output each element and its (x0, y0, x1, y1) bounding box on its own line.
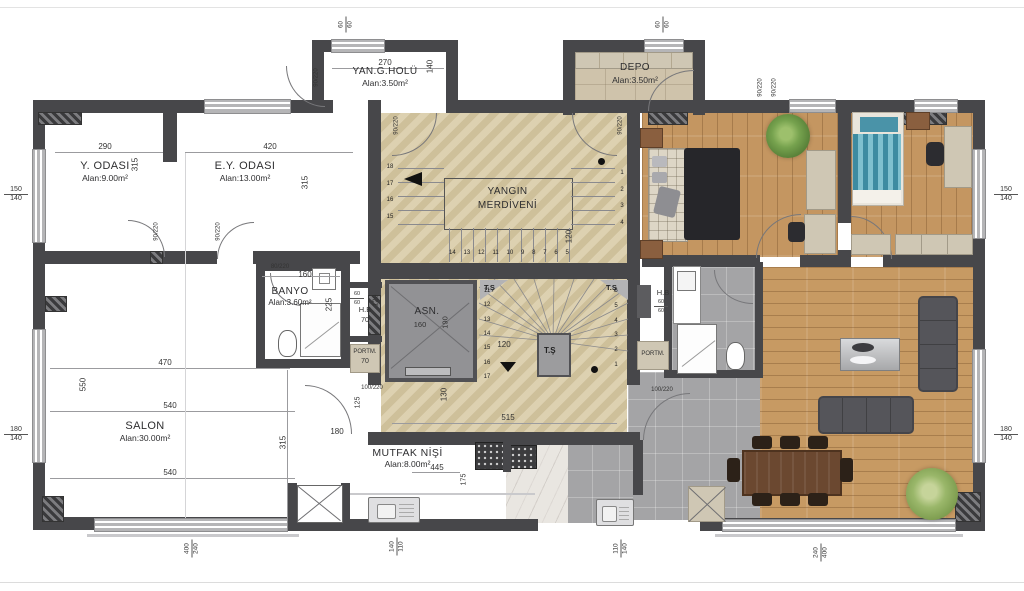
y-odasi-area: Alan:9.00m² (55, 174, 155, 183)
stair-start-dot (598, 158, 605, 165)
window (332, 40, 384, 52)
stair-direction-arrow (404, 172, 422, 186)
landing-width: 515 (488, 413, 528, 422)
edge-left-bottom: 180 140 (4, 426, 28, 443)
main-step-numbers-left: 11121314151617 (481, 288, 493, 380)
nightstand (906, 112, 930, 130)
door-size: 100/220 (642, 387, 682, 394)
edge-value: 140 (4, 435, 28, 443)
dining-chair (808, 493, 828, 506)
sofa-vertical (918, 296, 958, 392)
step-number: 5 (566, 250, 569, 258)
shaft (637, 285, 651, 318)
page-border-top (0, 7, 1024, 8)
door-size: 90/220 (216, 219, 223, 245)
bottom-dim-3: 110 140 (613, 540, 630, 558)
ey-odasi-height: 315 (301, 170, 310, 196)
edge-value: 110 (398, 538, 406, 556)
banyo-sink-basin (319, 273, 330, 284)
window (973, 350, 985, 462)
door-size: 90/220 (314, 65, 321, 91)
wall-segment (563, 40, 705, 52)
step-number: 9 (521, 250, 524, 258)
cabinet (851, 234, 891, 255)
step-number: 1 (616, 170, 628, 176)
edge-right-bottom: 180 140 (994, 426, 1018, 443)
window (205, 100, 290, 113)
wall-hatch (648, 112, 688, 125)
cabinet (895, 234, 973, 255)
wall-segment (350, 282, 382, 288)
dim-line (50, 411, 295, 412)
step-number: 18 (384, 164, 396, 170)
entry-left-dim: 125 (354, 391, 363, 415)
bottom-dim-1: 400 240 (184, 540, 201, 558)
vent-grill (476, 443, 503, 469)
edge-value: 400 (184, 540, 193, 558)
main-step-numbers-right: 654321 (610, 288, 622, 368)
edge-value: 60 (347, 17, 355, 33)
banyo-area: Alan:3.60m² (256, 298, 324, 307)
salon-area: Alan:30.00m² (90, 434, 200, 443)
wardrobe (806, 150, 836, 210)
step-number: 11 (492, 250, 498, 258)
bed1-pillow (652, 156, 667, 167)
wall-segment (368, 100, 381, 385)
edge-value: 180 (4, 426, 28, 435)
window (915, 100, 957, 112)
step-number: 4 (610, 318, 622, 324)
window (790, 100, 835, 112)
step-number: 17 (384, 181, 396, 187)
wall-segment (503, 440, 511, 472)
step-number: 13 (463, 250, 470, 258)
witness-line (185, 153, 186, 518)
dining-chair (780, 436, 800, 449)
ey-odasi-width: 420 (245, 142, 295, 151)
floor-plan: ASN. 160 190 YANGIN MERDİVENİ 18171615 1… (0, 0, 1024, 591)
step-number: 12 (478, 250, 485, 258)
tv-unit (840, 338, 900, 371)
tv-shelf (850, 356, 876, 364)
mutfak-name: MUTFAK NİŞİ (350, 447, 465, 459)
plant (766, 114, 810, 158)
fire-step-numbers-left: 18171615 (384, 164, 396, 220)
dim-line (50, 478, 295, 479)
step-number: 14 (481, 331, 493, 337)
dining-chair (840, 458, 853, 482)
wall-hatch (42, 496, 64, 522)
stair-down-arrow (500, 362, 516, 372)
hb-size-bottom: 60 (654, 307, 668, 315)
window (645, 40, 683, 52)
step-number: 14 (449, 250, 456, 258)
bed2-fold (853, 190, 901, 203)
step-number: 6 (610, 288, 622, 294)
ey-odasi-area: Alan:13.00m² (190, 174, 300, 183)
step-number: 3 (610, 332, 622, 338)
bed2-pillow (858, 115, 900, 134)
wall-hatch (38, 112, 82, 125)
door-size: 90/220 (154, 219, 161, 245)
dim-line (392, 423, 617, 424)
hb-left-width: 70 (354, 316, 376, 325)
edge-value: 60 (655, 17, 664, 33)
tv-screen (852, 343, 874, 352)
fire-stair-title2: MERDİVENİ (444, 200, 571, 212)
toilet (726, 342, 745, 370)
stair-newel-box (537, 333, 571, 377)
dim-line (50, 368, 290, 369)
portm-right-label: PORTM. (637, 350, 669, 359)
wall-hatch (955, 492, 981, 522)
hall-gap-dim: 180 (322, 427, 352, 436)
fire-stair-title1: YANGIN (444, 186, 571, 198)
dim-line (55, 152, 163, 153)
edge-value: 140 (4, 195, 28, 203)
edge-value: 140 (994, 435, 1018, 443)
wall-hatch (45, 296, 67, 312)
wall-segment (455, 100, 640, 113)
edge-value: 110 (613, 540, 622, 558)
depo-name: DEPO (580, 62, 690, 74)
bath-sink (677, 271, 696, 291)
wall-segment (256, 359, 350, 368)
counter-edge (350, 493, 535, 495)
edge-value: 240 (813, 544, 822, 562)
main-stair-width: 120 (492, 340, 516, 349)
bed1-blanket (684, 148, 740, 240)
balcony-window (723, 520, 955, 531)
shower (300, 303, 341, 357)
salon-dim-top: 470 (145, 358, 185, 367)
stair-end-dot (591, 366, 598, 373)
banyo-name: BANYO (262, 286, 318, 298)
ey-odasi-door-arc (217, 222, 254, 259)
step-number: 7 (543, 250, 546, 258)
fire-steps-right (571, 168, 615, 226)
bed2-blanket (853, 134, 901, 190)
page-border-bottom (0, 582, 1024, 583)
edge-value: 240 (193, 540, 201, 558)
mutfak-width: 445 (418, 463, 456, 472)
window-sill (715, 534, 963, 537)
edge-value: 180 (994, 426, 1018, 435)
desk (804, 214, 836, 254)
step-number: 10 (506, 250, 513, 258)
step-number: 17 (481, 374, 493, 380)
dining-chair (752, 436, 772, 449)
y-odasi-name: Y. ODASI (55, 160, 155, 172)
hb-left-depth: 120 (372, 289, 381, 313)
dining-chair (780, 493, 800, 506)
dining-chair (808, 436, 828, 449)
edge-value: 140 (622, 540, 630, 558)
dim-line (412, 472, 460, 473)
hb-size-top: 60 (350, 290, 364, 299)
step-number: 13 (481, 317, 493, 323)
holu-height: 140 (426, 55, 435, 79)
bottom-dim-2: 140 110 (389, 538, 406, 556)
portm-left-width: 70 (354, 357, 376, 366)
holu-area: Alan:3.50m² (330, 79, 440, 88)
edge-value: 60 (338, 17, 347, 33)
wall-segment (838, 250, 851, 267)
wall-segment (163, 112, 177, 162)
nightstand (640, 128, 663, 148)
salon-dim-right: 315 (279, 430, 288, 456)
ts-label-center: T.Ş (544, 346, 556, 355)
salon-balcony-window (95, 519, 287, 531)
wall-segment (256, 262, 265, 368)
elevator-depth: 190 (441, 310, 450, 336)
step-number: 16 (384, 197, 396, 203)
edge-value: 150 (994, 186, 1018, 195)
bed1-pillow (652, 172, 667, 183)
window-sill (87, 534, 299, 537)
wall-segment (163, 251, 217, 264)
mutfak-height: 175 (460, 468, 469, 492)
wall-segment (341, 262, 350, 368)
step-number: 3 (616, 203, 628, 209)
wall-segment (800, 255, 838, 267)
edge-value: 140 (389, 538, 398, 556)
shower (677, 324, 717, 374)
step-number: 8 (532, 250, 535, 258)
ey-odasi-name: E.Y. ODASI (190, 160, 300, 172)
depo-area: Alan:3.50m² (580, 76, 690, 85)
step-number: 4 (616, 220, 628, 226)
step-number: 16 (481, 360, 493, 366)
sofa-horizontal (818, 396, 914, 434)
portm-left-label: PORTM. (350, 348, 380, 357)
wall-segment (838, 105, 851, 223)
chair (788, 222, 805, 242)
hb-right-label: H.B (650, 288, 676, 297)
banyo-width: 160 (290, 270, 320, 279)
step-number: 1 (610, 362, 622, 368)
vent-grill (510, 446, 536, 468)
wall-segment (883, 255, 973, 267)
wall-segment (288, 483, 297, 523)
salon-dim-bottom: 540 (150, 468, 190, 477)
step-number: 5 (610, 303, 622, 309)
step-number: 12 (481, 302, 493, 308)
window (33, 330, 45, 462)
banyo-height: 225 (325, 292, 334, 318)
step-number: 2 (610, 347, 622, 353)
fire-step-numbers-bottom: 141312111098765 (449, 250, 569, 258)
landing-depth: 130 (440, 382, 449, 408)
window (973, 150, 985, 238)
elevator-width: 160 (400, 320, 440, 329)
fire-stair-width: 120 (565, 224, 574, 250)
nightstand (640, 240, 663, 259)
edge-value: 60 (664, 17, 672, 33)
edge-value: 140 (994, 195, 1018, 203)
salon-name: SALON (90, 420, 200, 432)
step-number: 15 (384, 214, 396, 220)
hb-size-top: 60 (654, 298, 668, 307)
chair (926, 142, 944, 166)
top-window-size: 60 60 (655, 17, 672, 33)
edge-right-top: 150 140 (994, 186, 1018, 203)
dining-chair (727, 458, 740, 482)
plant (906, 468, 958, 520)
y-odasi-width: 290 (80, 142, 130, 151)
door-size: 90/220 (394, 113, 401, 139)
door-size: 90/220 (618, 113, 625, 139)
holu-name: YAN.G.HOLÜ (330, 66, 440, 78)
salon-dim-mid: 540 (150, 401, 190, 410)
dining-chair (752, 493, 772, 506)
salon-dim-left: 550 (79, 372, 88, 398)
kitchen-sink-right (596, 499, 634, 526)
step-number: 11 (481, 288, 493, 294)
fire-step-numbers-right: 1234 (616, 170, 628, 226)
window (33, 150, 45, 242)
edge-value: 150 (4, 186, 28, 195)
step-number: 2 (616, 187, 628, 193)
toilet (278, 330, 297, 357)
wall-segment (633, 440, 643, 495)
door-size: 90/220 (758, 75, 765, 101)
hb-right-size: 60 60 (654, 298, 668, 315)
wall-segment (693, 40, 705, 115)
edge-value: 400 (822, 544, 830, 562)
dining-table (742, 450, 842, 496)
wall-segment (755, 262, 763, 378)
desk (944, 126, 972, 188)
step-number: 6 (554, 250, 557, 258)
wall-segment (381, 263, 627, 279)
kitchen-sink-left (368, 497, 420, 523)
bottom-dim-4: 240 400 (813, 544, 830, 562)
top-window-size: 60 60 (338, 17, 355, 33)
edge-left-top: 150 140 (4, 186, 28, 203)
dim-line (185, 152, 353, 153)
wall-segment (350, 336, 382, 342)
door-size: 90/220 (772, 75, 779, 101)
elevator-door (405, 367, 451, 376)
y-odasi-height: 315 (131, 152, 140, 178)
